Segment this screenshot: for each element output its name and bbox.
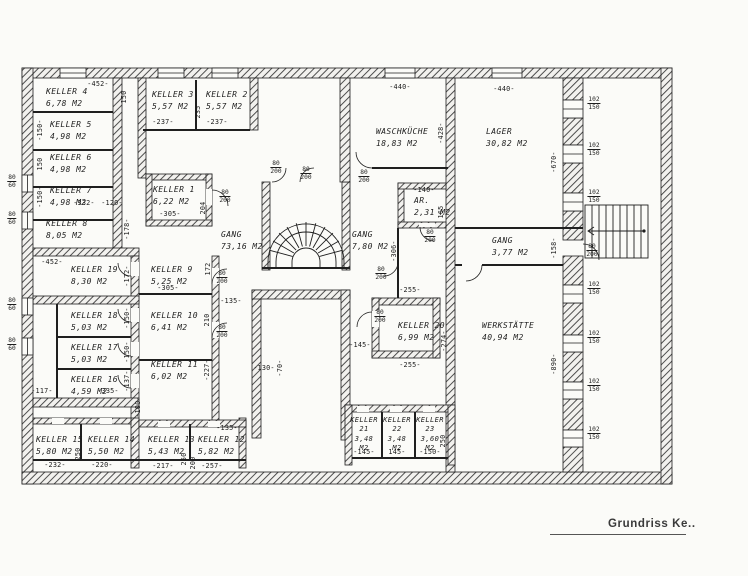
dim-label: -452-: [87, 80, 108, 88]
window-height: 150: [587, 197, 600, 204]
room-label-keller-6: KELLER 64,98 M2: [50, 152, 92, 176]
window-width: 102: [587, 426, 600, 434]
door-height: 200: [216, 332, 227, 339]
window-size-label: 8060: [7, 297, 16, 312]
dim-label: -172-: [123, 265, 131, 286]
door-width: 80: [300, 166, 311, 174]
floor-plan-drawing: [0, 0, 748, 576]
room-name: KELLER 16: [71, 374, 118, 386]
window-height: 60: [7, 305, 16, 312]
window-width: 102: [587, 189, 600, 197]
room-label-keller-12: KELLER 125,82 M2: [198, 434, 245, 458]
dim-label: -135-: [220, 297, 241, 305]
window-size-label: 8060: [7, 337, 16, 352]
room-area: 6,99 M2: [398, 332, 445, 344]
dim-label: -332-: [73, 199, 94, 207]
dim-label: -670-: [550, 151, 558, 172]
dim-label: -440-: [493, 85, 514, 93]
door-size-label: 80200: [424, 229, 435, 244]
door-size-label: 80200: [586, 243, 597, 258]
room-name: KELLER 7: [50, 185, 92, 197]
window-width: 80: [7, 337, 16, 345]
door-height: 200: [358, 177, 369, 184]
room-area: 8,30 M2: [71, 276, 118, 288]
dim-label: 165: [437, 206, 445, 219]
room-label-keller-5: KELLER 54,98 M2: [50, 119, 92, 143]
room-name: GANG: [221, 229, 263, 241]
room-name: KELLER 13: [148, 434, 195, 446]
window-size-label: 102150: [587, 96, 600, 111]
door-size-label: 80200: [216, 270, 227, 285]
dim-label: -428-: [437, 122, 445, 143]
spiral-staircase: [268, 222, 344, 268]
room-name: LAGER: [486, 126, 528, 138]
dim-label: -117-: [31, 387, 52, 395]
dim-label: -150-: [123, 307, 131, 328]
room-name: KELLER 23: [415, 416, 445, 435]
door-height: 200: [586, 251, 597, 258]
room-name: KELLER 2: [206, 89, 248, 101]
dim-label: -257-: [201, 462, 222, 470]
room-label-keller-18: KELLER 185,03 M2: [71, 310, 118, 334]
door-width: 80: [375, 266, 386, 274]
window-width: 80: [7, 174, 16, 182]
room-area: 5,50 M2: [88, 446, 135, 458]
room-area: 5,57 M2: [152, 101, 194, 113]
room-name: KELLER 10: [151, 310, 198, 322]
dim-label: -150-: [123, 341, 131, 362]
room-area: 8,05 M2: [46, 230, 88, 242]
window-size-label: 102150: [587, 281, 600, 296]
room-name: KELLER 9: [151, 264, 193, 276]
room-area: 3,77 M2: [492, 247, 529, 259]
dim-label: 200: [189, 457, 197, 470]
door-width: 80: [270, 160, 281, 168]
room-label-waschkueche: WASCHKÜCHE18,83 M2: [376, 126, 428, 150]
window-height: 60: [7, 219, 16, 226]
room-label-lager: LAGER30,82 M2: [486, 126, 528, 150]
door-width: 80: [586, 243, 597, 251]
window-width: 102: [587, 378, 600, 386]
door-width: 80: [358, 169, 369, 177]
dim-label: -237-: [152, 118, 173, 126]
room-name: KELLER 22: [382, 416, 412, 435]
door-size-label: 80200: [216, 324, 227, 339]
room-name: KELLER 14: [88, 434, 135, 446]
room-name: KELLER 12: [198, 434, 245, 446]
dim-label: -150-: [36, 119, 44, 140]
room-area: 7,80 M2: [352, 241, 389, 253]
dim-label: -305-: [157, 284, 178, 292]
dim-label: -70-: [276, 359, 284, 376]
door-width: 80: [216, 270, 227, 278]
dim-label: -135-: [216, 424, 237, 432]
room-label-keller-17: KELLER 175,03 M2: [71, 342, 118, 366]
door-size-label: 80200: [375, 266, 386, 281]
dim-label: -158-: [550, 237, 558, 258]
room-name: KELLER 8: [46, 218, 88, 230]
room-name: GANG: [492, 235, 529, 247]
room-label-keller-10: KELLER 106,41 M2: [151, 310, 198, 334]
room-area: 4,98 M2: [50, 164, 92, 176]
room-name: KELLER 4: [46, 86, 88, 98]
room-area: 5,57 M2: [206, 101, 248, 113]
dim-label: -140-: [413, 186, 434, 194]
door-width: 80: [216, 324, 227, 332]
title-underline: [550, 534, 686, 535]
door-width: 80: [424, 229, 435, 237]
window-width: 80: [7, 211, 16, 219]
scanned-floor-plan-page: KELLER 46,78 M2 KELLER 35,57 M2 KELLER 2…: [0, 0, 748, 576]
window-height: 150: [587, 104, 600, 111]
dim-label: -178-: [123, 218, 131, 239]
door-height: 200: [424, 237, 435, 244]
room-name: KELLER 6: [50, 152, 92, 164]
window-size-label: 102150: [587, 426, 600, 441]
dim-label: -306-: [390, 240, 398, 261]
dim-label: -130-: [253, 364, 274, 372]
room-area: 5,03 M2: [71, 322, 118, 334]
window-size-label: 102150: [587, 378, 600, 393]
dim-label: 210: [203, 314, 211, 327]
window-height: 150: [587, 150, 600, 157]
dim-label: 150: [120, 91, 128, 104]
room-label-keller-19: KELLER 198,30 M2: [71, 264, 118, 288]
room-label-ar: AR.2,31 M2: [414, 195, 451, 219]
room-label-keller-3: KELLER 35,57 M2: [152, 89, 194, 113]
door-width: 80: [374, 309, 385, 317]
room-area: 6,22 M2: [153, 196, 195, 208]
room-name: KELLER 18: [71, 310, 118, 322]
door-size-label: 80200: [270, 160, 281, 175]
room-area: 73,16 M2: [221, 241, 263, 253]
dim-label: -335-: [97, 387, 118, 395]
room-name: AR.: [414, 195, 451, 207]
door-height: 200: [216, 278, 227, 285]
window-height: 150: [587, 434, 600, 441]
door-size-label: 80200: [300, 166, 311, 181]
room-area: 18,83 M2: [376, 138, 428, 150]
room-name: KELLER 15: [36, 434, 83, 446]
window-size-label: 102150: [587, 189, 600, 204]
room-label-gang-2: GANG7,80 M2: [352, 229, 389, 253]
room-label-gang-main: GANG73,16 M2: [221, 229, 263, 253]
room-area: 5,03 M2: [71, 354, 118, 366]
dim-label: -150-: [419, 448, 440, 456]
dim-label: -274-: [440, 330, 448, 351]
room-name: KELLER 5: [50, 119, 92, 131]
dim-label: 172: [204, 263, 212, 276]
room-name: KELLER 17: [71, 342, 118, 354]
dim-label: -452-: [41, 258, 62, 266]
dim-label: -237-: [206, 118, 227, 126]
room-name: KELLER 11: [151, 359, 198, 371]
room-label-keller-20: KELLER 206,99 M2: [398, 320, 445, 344]
dim-label: 235: [194, 106, 202, 119]
room-label-keller-4: KELLER 46,78 M2: [46, 86, 88, 110]
window-width: 102: [587, 330, 600, 338]
door-height: 200: [270, 168, 281, 175]
window-width: 102: [587, 96, 600, 104]
room-name: KELLER 1: [153, 184, 195, 196]
dim-label: -150-: [36, 186, 44, 207]
window-width: 102: [587, 142, 600, 150]
window-height: 150: [587, 289, 600, 296]
window-height: 150: [587, 386, 600, 393]
room-area: 6,41 M2: [151, 322, 198, 334]
dim-label: -100-: [134, 396, 142, 417]
window-height: 60: [7, 182, 16, 189]
room-area: 4,98 M2: [50, 131, 92, 143]
room-label-keller-11: KELLER 116,02 M2: [151, 359, 198, 383]
room-name: KELLER 19: [71, 264, 118, 276]
dim-label: -145-: [349, 341, 370, 349]
dim-label: -440-: [389, 83, 410, 91]
door-width: 80: [219, 189, 230, 197]
room-area: 30,82 M2: [486, 138, 528, 150]
drawing-title: Grundriss Ke..: [608, 518, 696, 530]
door-height: 200: [300, 174, 311, 181]
dim-label: -255-: [399, 361, 420, 369]
room-label-keller-14: KELLER 145,50 M2: [88, 434, 135, 458]
window-width: 80: [7, 297, 16, 305]
door-size-label: 80200: [358, 169, 369, 184]
door-height: 200: [374, 317, 385, 324]
room-area: 6,78 M2: [46, 98, 88, 110]
window-size-label: 102150: [587, 142, 600, 157]
dim-label: 145-: [388, 448, 405, 456]
room-name: WASCHKÜCHE: [376, 126, 428, 138]
room-label-keller-1: KELLER 16,22 M2: [153, 184, 195, 208]
room-area: 6,02 M2: [151, 371, 198, 383]
door-height: 200: [375, 274, 386, 281]
dim-label: -232-: [44, 461, 65, 469]
dim-label: -255-: [399, 286, 420, 294]
walls: [22, 68, 672, 484]
room-label-werkstaette: WERKSTÄTTE40,94 M2: [482, 320, 534, 344]
dim-label: -227-: [203, 359, 211, 380]
door-size-label: 80200: [374, 309, 385, 324]
room-name: KELLER 3: [152, 89, 194, 101]
room-name: WERKSTÄTTE: [482, 320, 534, 332]
window-size-label: 8060: [7, 174, 16, 189]
room-name: KELLER 20: [398, 320, 445, 332]
room-name: GANG: [352, 229, 389, 241]
dim-label: -120-: [101, 199, 122, 207]
window-size-label: 102150: [587, 330, 600, 345]
dim-label: -145-: [353, 448, 374, 456]
room-name: KELLER 21: [349, 416, 379, 435]
room-label-gang-3: GANG3,77 M2: [492, 235, 529, 259]
room-area: 40,94 M2: [482, 332, 534, 344]
window-size-label: 8060: [7, 211, 16, 226]
dim-label: -137-: [123, 370, 131, 391]
dim-label: 150: [36, 158, 44, 171]
dim-label: -305-: [159, 210, 180, 218]
dim-label: -220-: [91, 461, 112, 469]
dim-label: 250: [439, 435, 447, 448]
dim-label: 250: [180, 453, 188, 466]
door-height: 200: [219, 197, 230, 204]
room-area: 2,31 M2: [414, 207, 451, 219]
room-area: 5,82 M2: [198, 446, 245, 458]
dim-label: 250: [74, 448, 82, 461]
window-height: 60: [7, 345, 16, 352]
dim-label: 204: [199, 202, 207, 215]
door-size-label: 80200: [219, 189, 230, 204]
window-height: 150: [587, 338, 600, 345]
window-width: 102: [587, 281, 600, 289]
dim-label: -217-: [152, 462, 173, 470]
room-label-keller-8: KELLER 88,05 M2: [46, 218, 88, 242]
dim-label: -890-: [550, 353, 558, 374]
room-label-keller-2: KELLER 25,57 M2: [206, 89, 248, 113]
